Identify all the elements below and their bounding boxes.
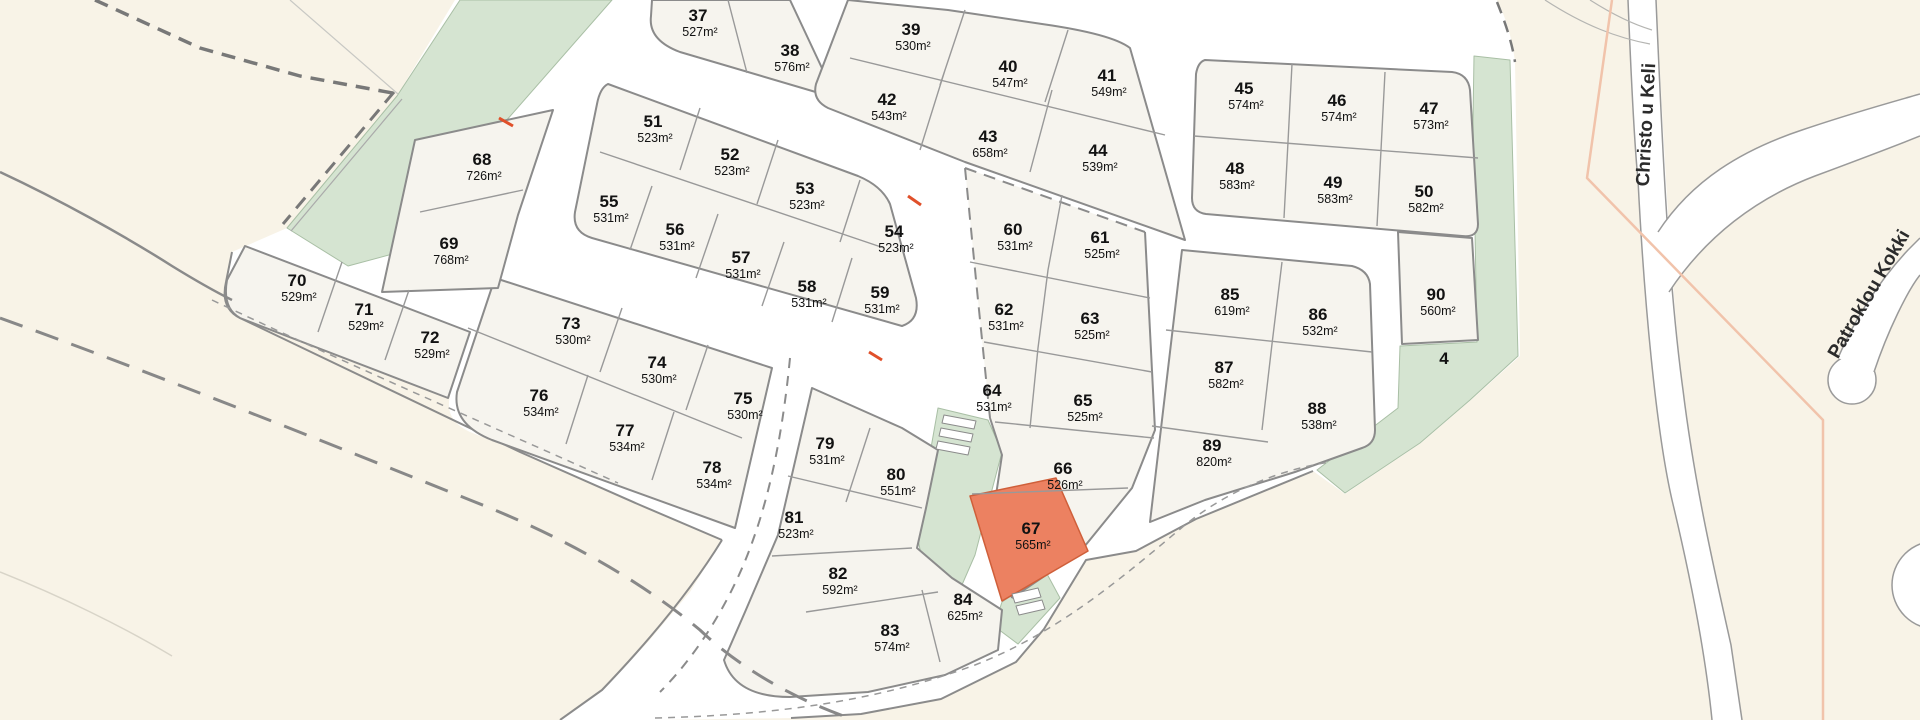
plot-area: 543m²: [871, 109, 906, 123]
plot-area: 531m²: [593, 211, 628, 225]
plot-area: 549m²: [1091, 85, 1126, 99]
plot-area: 582m²: [1208, 377, 1243, 391]
plot-area: 529m²: [348, 319, 383, 333]
plot-area: 532m²: [1302, 324, 1337, 338]
plot-number: 85: [1221, 285, 1240, 304]
plot-number: 64: [983, 381, 1002, 400]
plot-number: 90: [1427, 285, 1446, 304]
plot-area: 551m²: [880, 484, 915, 498]
plot-number: 37: [689, 6, 708, 25]
plot-number: 41: [1098, 66, 1117, 85]
plot-number: 68: [473, 150, 492, 169]
plot-number: 80: [887, 465, 906, 484]
plot-area: 531m²: [809, 453, 844, 467]
plot-number: 52: [721, 145, 740, 164]
plot-area: 768m²: [433, 253, 468, 267]
plot-number: 81: [785, 508, 804, 527]
plot-area: 820m²: [1196, 455, 1231, 469]
plot-area: 523m²: [789, 198, 824, 212]
plot-area: 531m²: [997, 239, 1032, 253]
plot-area: 523m²: [778, 527, 813, 541]
plot-number: 49: [1324, 173, 1343, 192]
plot-area: 560m²: [1420, 304, 1455, 318]
plot-number: 86: [1309, 305, 1328, 324]
plot-number: 89: [1203, 436, 1222, 455]
plot-number: 77: [616, 421, 635, 440]
plot-number: 88: [1308, 399, 1327, 418]
plot-area: 523m²: [714, 164, 749, 178]
plot-number: 83: [881, 621, 900, 640]
plot-number: 78: [703, 458, 722, 477]
plot-area: 573m²: [1413, 118, 1448, 132]
plot-area: 529m²: [281, 290, 316, 304]
plot-number: 60: [1004, 220, 1023, 239]
plot-number: 73: [562, 314, 581, 333]
plot-area: 531m²: [791, 296, 826, 310]
plot-number: 51: [644, 112, 663, 131]
plot-number: 87: [1215, 358, 1234, 377]
plot-area: 527m²: [682, 25, 717, 39]
plot-area: 531m²: [864, 302, 899, 316]
plot-number: 71: [355, 300, 374, 319]
plot-number: 59: [871, 283, 890, 302]
plot-number: 44: [1089, 141, 1108, 160]
plot-area: 531m²: [976, 400, 1011, 414]
plot-area: 530m²: [895, 39, 930, 53]
plot-number: 55: [600, 192, 619, 211]
plot-number: 61: [1091, 228, 1110, 247]
plot-area: 726m²: [466, 169, 501, 183]
plot-number: 70: [288, 271, 307, 290]
plot-number: 42: [878, 90, 897, 109]
plot-area: 574m²: [1321, 110, 1356, 124]
plot-number: 74: [648, 353, 667, 372]
plot-number: 54: [885, 222, 904, 241]
plot-area: 530m²: [641, 372, 676, 386]
plot-area: 547m²: [992, 76, 1027, 90]
plot-area: 530m²: [555, 333, 590, 347]
plot-number: 82: [829, 564, 848, 583]
plot-area: 592m²: [822, 583, 857, 597]
plot-number: 75: [734, 389, 753, 408]
plot-area: 525m²: [1067, 410, 1102, 424]
plot-area: 658m²: [972, 146, 1007, 160]
plot-number: 84: [954, 590, 973, 609]
plot-number: 50: [1415, 182, 1434, 201]
plot-number: 56: [666, 220, 685, 239]
plot-area: 565m²: [1015, 538, 1050, 552]
plot-area: 582m²: [1408, 201, 1443, 215]
plot-number: 46: [1328, 91, 1347, 110]
plot-number: 47: [1420, 99, 1439, 118]
plot-area: 530m²: [727, 408, 762, 422]
plot-number: 53: [796, 179, 815, 198]
plot-area: 539m²: [1082, 160, 1117, 174]
plot-number: 45: [1235, 79, 1254, 98]
plot-number: 63: [1081, 309, 1100, 328]
plot-number: 79: [816, 434, 835, 453]
plot-number: 62: [995, 300, 1014, 319]
plot-number: 48: [1226, 159, 1245, 178]
plot-area: 625m²: [947, 609, 982, 623]
plot-number: 57: [732, 248, 751, 267]
plot-area: 526m²: [1047, 478, 1082, 492]
plot-number: 38: [781, 41, 800, 60]
plot-number: 43: [979, 127, 998, 146]
plot-area: 534m²: [609, 440, 644, 454]
plot-area: 538m²: [1301, 418, 1336, 432]
plot-area: 583m²: [1219, 178, 1254, 192]
plot-area: 523m²: [637, 131, 672, 145]
plot-number: 65: [1074, 391, 1093, 410]
plot-area: 531m²: [725, 267, 760, 281]
plot-area: 574m²: [874, 640, 909, 654]
site-map[interactable]: 37527m²38576m²39530m²40547m²41549m²42543…: [0, 0, 1920, 720]
plot-number: 69: [440, 234, 459, 253]
plot-area: 576m²: [774, 60, 809, 74]
plot-number: 67: [1022, 519, 1041, 538]
plot-area: 534m²: [523, 405, 558, 419]
plot-area: 619m²: [1214, 304, 1249, 318]
plot-area: 534m²: [696, 477, 731, 491]
plot-area: 583m²: [1317, 192, 1352, 206]
plot-number: 40: [999, 57, 1018, 76]
plot-area: 531m²: [659, 239, 694, 253]
plot-number: 58: [798, 277, 817, 296]
plot-area: 574m²: [1228, 98, 1263, 112]
plot-number: 39: [902, 20, 921, 39]
plot-number: 76: [530, 386, 549, 405]
plot-number: 66: [1054, 459, 1073, 478]
plot-area: 525m²: [1084, 247, 1119, 261]
plot-area: 529m²: [414, 347, 449, 361]
site-plan-viewer: 37527m²38576m²39530m²40547m²41549m²42543…: [0, 0, 1920, 720]
plot-area: 531m²: [988, 319, 1023, 333]
green-area-label: 4: [1439, 349, 1449, 368]
plot-area: 523m²: [878, 241, 913, 255]
plot-area: 525m²: [1074, 328, 1109, 342]
plot-number: 72: [421, 328, 440, 347]
